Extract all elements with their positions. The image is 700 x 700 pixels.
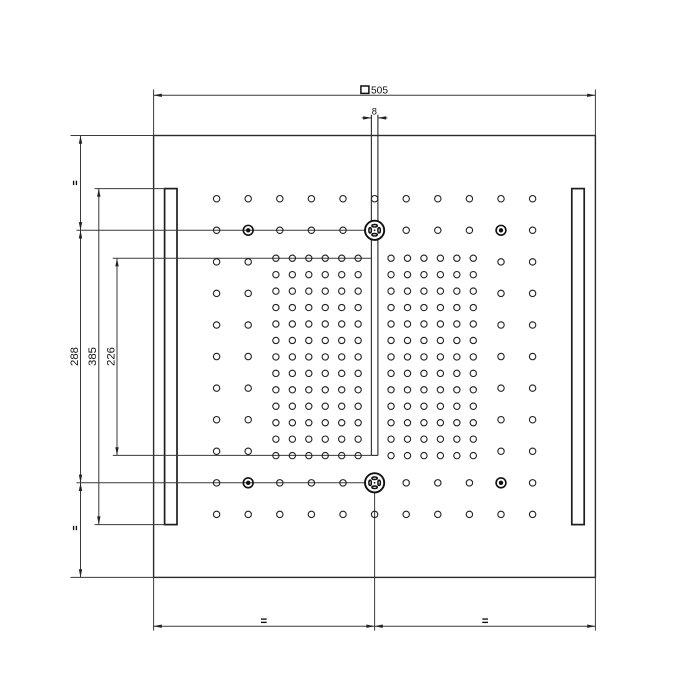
svg-text:8: 8 — [372, 106, 377, 116]
svg-text:288: 288 — [69, 347, 81, 366]
svg-text:385: 385 — [87, 347, 99, 366]
svg-text:226: 226 — [105, 347, 117, 366]
svg-text:505: 505 — [371, 85, 388, 96]
